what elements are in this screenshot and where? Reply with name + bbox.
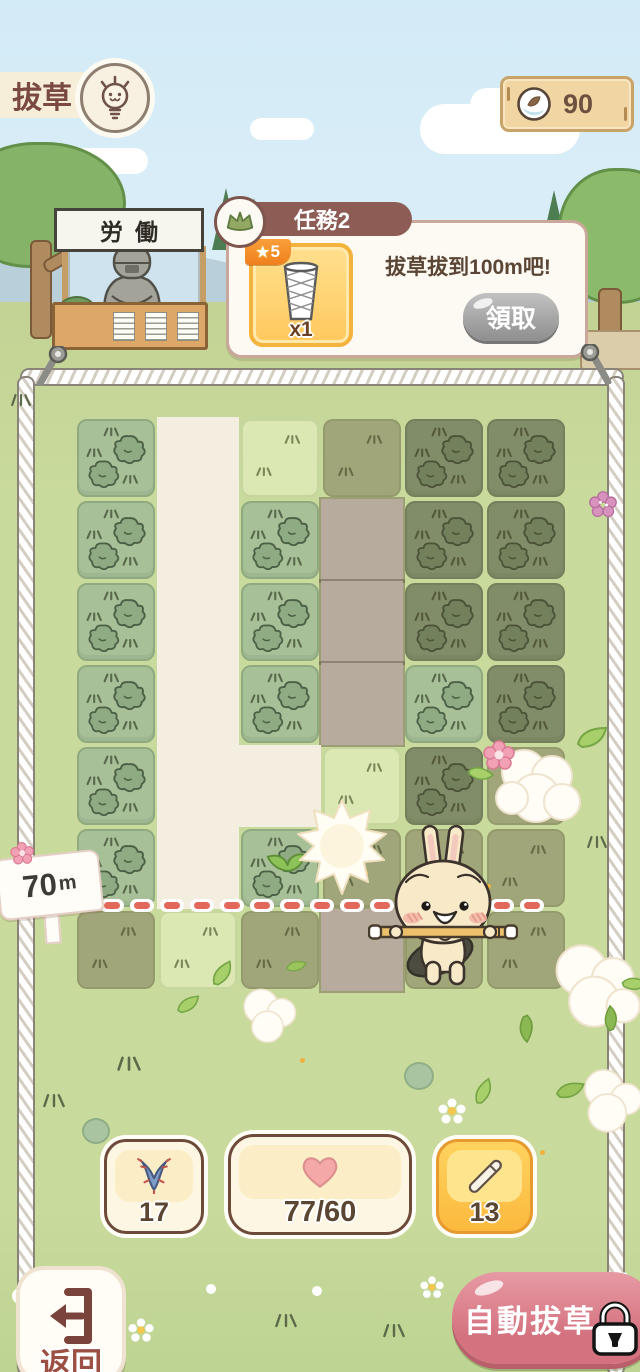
paper-note	[145, 312, 167, 341]
grass-tuft	[586, 834, 608, 849]
empty-tile[interactable]	[323, 419, 401, 497]
cleared-path-cell	[157, 745, 239, 827]
grass-tile[interactable]	[487, 583, 565, 661]
lock-icon	[588, 1298, 640, 1358]
paper-note	[177, 312, 199, 341]
distance-value: 70	[21, 866, 59, 905]
puff-cloud	[230, 978, 308, 1052]
flower	[588, 490, 618, 520]
auto-label: 自動拔草	[452, 1272, 608, 1364]
game-screen: 労働 拔草 90	[0, 0, 640, 1372]
booth-sign-text: 労働	[88, 213, 170, 247]
claim-label: 領取	[486, 299, 536, 335]
progress-dash	[520, 899, 544, 912]
grass-tuft	[42, 1092, 66, 1108]
pencil-counter[interactable]: 13	[436, 1139, 533, 1234]
heart-counter[interactable]: 77/60	[228, 1134, 412, 1235]
booth-counter	[52, 302, 208, 350]
crown-badge	[214, 196, 266, 248]
pencil-count: 13	[439, 1197, 530, 1228]
daisy-flower	[128, 1318, 154, 1344]
crown-icon	[224, 209, 256, 235]
star-count: 5	[270, 242, 279, 262]
cleared-path-cell	[157, 581, 239, 663]
rope-stake	[578, 344, 618, 384]
back-label: 返回	[20, 1339, 122, 1372]
root-count: 17	[107, 1197, 201, 1228]
leaf	[554, 1076, 588, 1105]
quest-title: 任務2	[294, 203, 350, 235]
cleared-path-cell	[321, 499, 403, 581]
bush-dot	[404, 1062, 434, 1090]
starburst-puff	[294, 798, 390, 898]
leaf	[175, 993, 203, 1015]
back-button[interactable]: 返回	[16, 1266, 126, 1372]
reward-count: x1	[253, 318, 349, 342]
progress-dash	[310, 899, 334, 912]
booth-sign: 労働	[54, 208, 204, 252]
labor-booth: 労働	[52, 200, 204, 350]
grass-tuft	[274, 1312, 298, 1328]
tree-trunk	[30, 240, 52, 339]
flower	[482, 740, 516, 772]
seed-icon	[515, 85, 553, 123]
page-title: 拔草	[12, 73, 72, 117]
progress-dash	[280, 899, 304, 912]
pencil-counter-pill	[447, 1150, 522, 1202]
cleared-path-cell	[321, 581, 403, 663]
empty-tile[interactable]	[241, 419, 319, 497]
root-counter-pill	[115, 1150, 193, 1202]
paper-note	[113, 312, 135, 341]
lightbulb-icon	[94, 75, 136, 121]
distance-unit: m	[58, 871, 78, 896]
heart-counter-pill	[239, 1145, 401, 1199]
flower-dot	[206, 1284, 216, 1294]
grass-tile[interactable]	[77, 501, 155, 579]
grass-tile[interactable]	[77, 419, 155, 497]
sparkle	[540, 1150, 545, 1155]
flower	[8, 841, 36, 867]
exit-icon	[48, 1284, 96, 1346]
heart-icon	[299, 1153, 341, 1191]
rabbit-character	[368, 810, 518, 990]
cleared-path-cell	[321, 663, 403, 745]
grass-tile[interactable]	[405, 419, 483, 497]
grass-tile[interactable]	[405, 501, 483, 579]
cleared-path-cell	[157, 827, 239, 909]
rope-border-right	[607, 376, 625, 1372]
auto-weed-button[interactable]: 自動拔草	[452, 1272, 640, 1364]
grass-tile[interactable]	[405, 665, 483, 743]
reward-item-card[interactable]: ★ 5 x1	[249, 243, 353, 347]
claim-button[interactable]: 領取	[463, 293, 559, 341]
grass-tile[interactable]	[405, 583, 483, 661]
grass-tile[interactable]	[487, 501, 565, 579]
progress-dash	[340, 899, 364, 912]
hint-button[interactable]	[80, 63, 150, 133]
currency-value: 90	[563, 89, 593, 120]
grass-tile[interactable]	[77, 665, 155, 743]
grass-tile[interactable]	[241, 665, 319, 743]
grass-tile[interactable]	[77, 583, 155, 661]
grass-tile[interactable]	[241, 501, 319, 579]
progress-dash	[250, 899, 274, 912]
daisy-flower	[438, 1098, 466, 1126]
currency-plaque: 90	[500, 76, 634, 132]
progress-dash	[130, 899, 154, 912]
heart-count: 77/60	[231, 1196, 409, 1229]
progress-dash	[220, 899, 244, 912]
quest-panel: ★ 5 x1 拔草拔到100m吧! 領取 任務2	[218, 196, 590, 356]
rope-border-top	[20, 368, 624, 386]
grass-tile[interactable]	[241, 583, 319, 661]
root-icon	[135, 1158, 173, 1194]
cleared-path-cell	[157, 417, 239, 499]
sparkle	[300, 1058, 305, 1063]
rope-stake	[30, 346, 70, 386]
grass-tuft	[382, 1322, 406, 1338]
grass-tuft	[116, 1054, 142, 1072]
trash-basket-icon	[277, 261, 325, 323]
quest-description: 拔草拔到100m吧!	[357, 251, 579, 281]
flower-dot	[312, 1286, 322, 1296]
grass-tuft	[10, 392, 32, 407]
daisy-flower	[420, 1276, 444, 1300]
grass-tile[interactable]	[77, 747, 155, 825]
progress-dash	[190, 899, 214, 912]
root-counter[interactable]: 17	[104, 1139, 204, 1234]
quest-card: ★ 5 x1 拔草拔到100m吧! 領取	[226, 220, 588, 358]
distance-sign: 70 m	[0, 836, 111, 948]
bush-dot	[82, 1118, 110, 1144]
cleared-path-cell	[157, 663, 239, 745]
grass-tile[interactable]	[487, 665, 565, 743]
progress-dash	[160, 899, 184, 912]
cleared-path-cell	[157, 499, 239, 581]
cloud	[250, 118, 314, 140]
pencil-icon	[465, 1156, 505, 1196]
star-icon: ★	[256, 243, 269, 261]
grass-tile[interactable]	[487, 419, 565, 497]
